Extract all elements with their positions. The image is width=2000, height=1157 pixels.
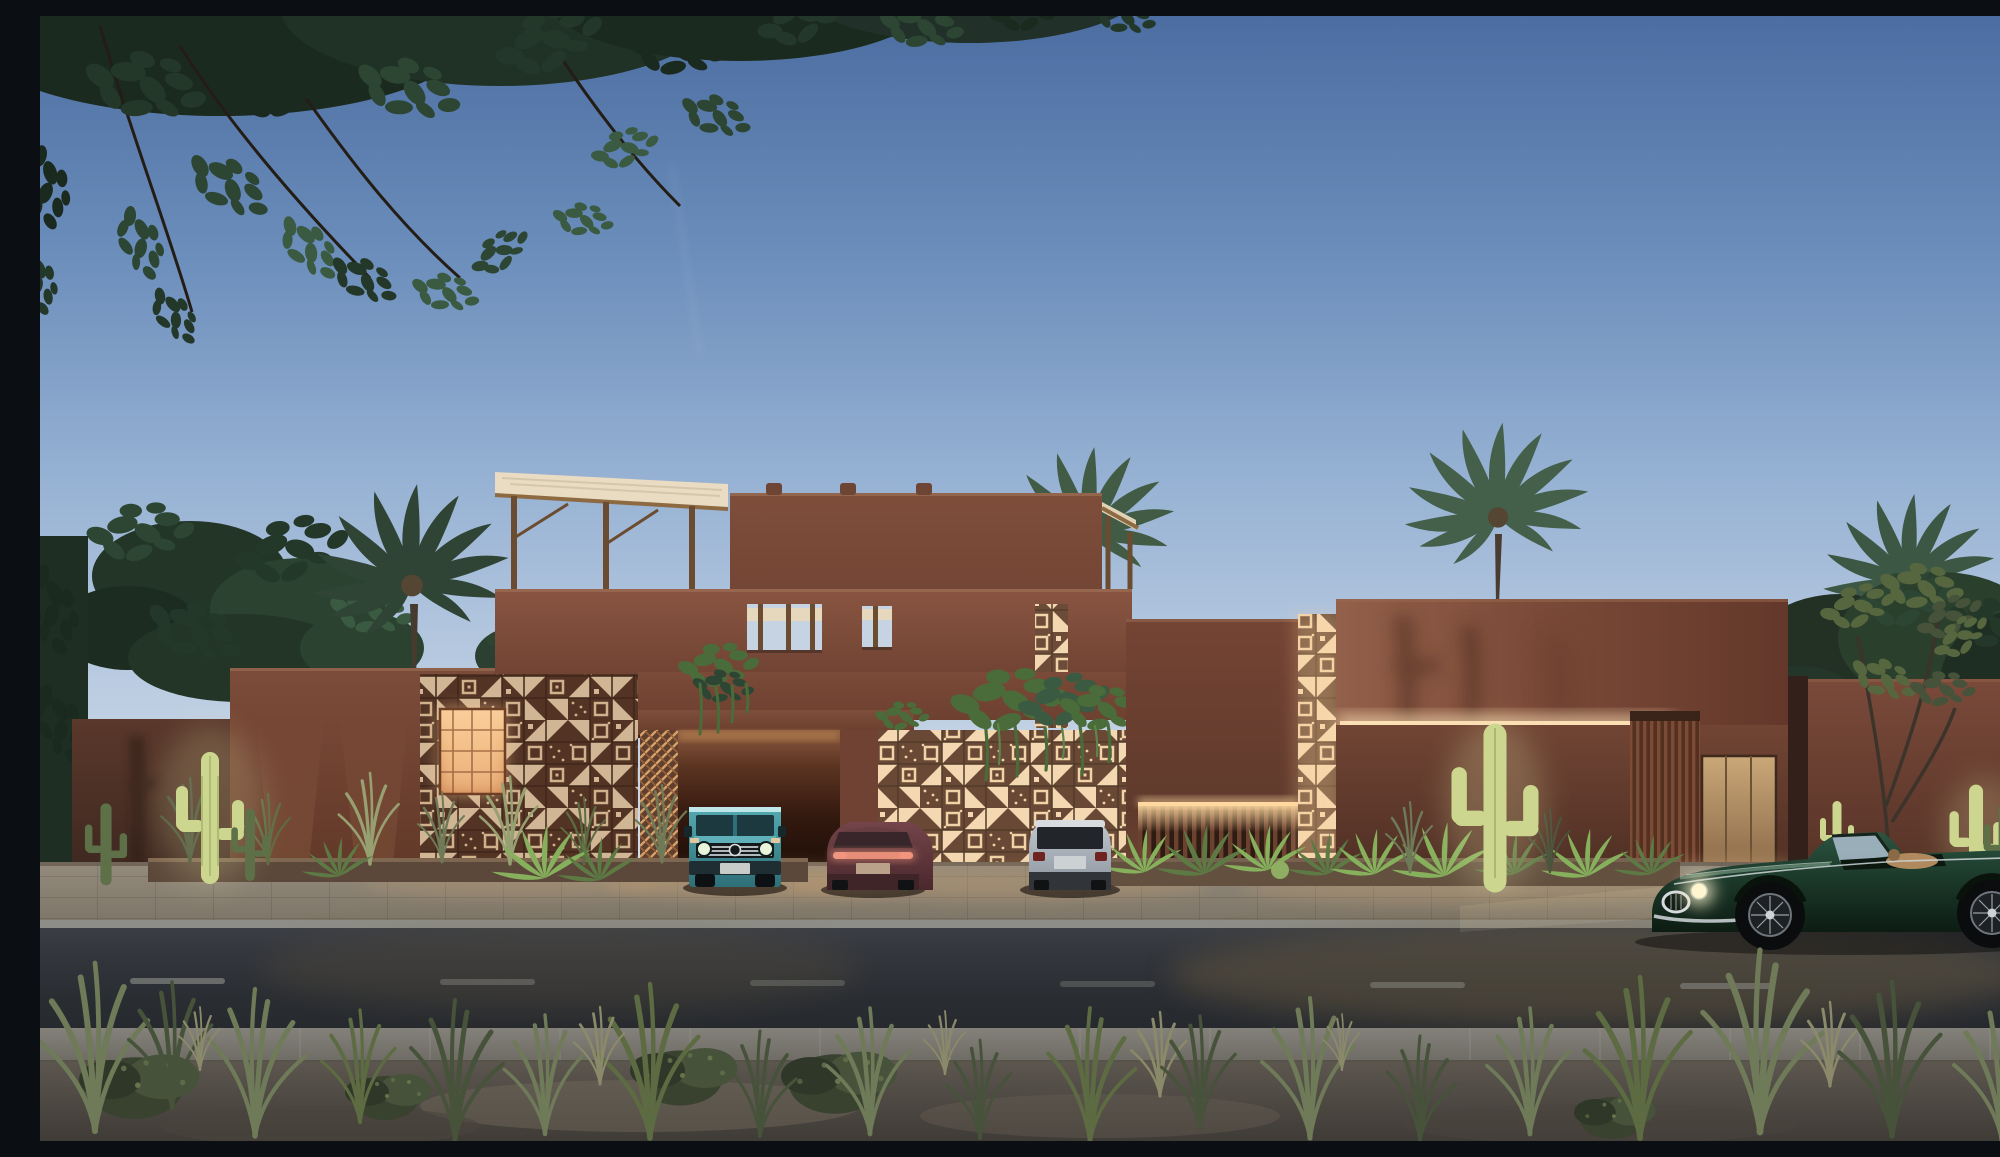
silver-suv [1020, 820, 1120, 898]
teal-offroad-suv [683, 807, 787, 896]
entry-door [1702, 756, 1776, 872]
villa-dusk-rendering: Desert modern terracotta villa at dusk —… [40, 16, 2000, 1141]
vertical-breeze-block-strip [1294, 614, 1340, 874]
maroon-suv [821, 822, 933, 898]
near-sidewalk [40, 1028, 2000, 1064]
entry-recess [1788, 676, 1808, 874]
rendering-stage: Desert modern terracotta villa at dusk —… [40, 16, 2000, 1141]
parapet-opening-small [862, 606, 892, 650]
parapet-opening-large [747, 604, 822, 653]
